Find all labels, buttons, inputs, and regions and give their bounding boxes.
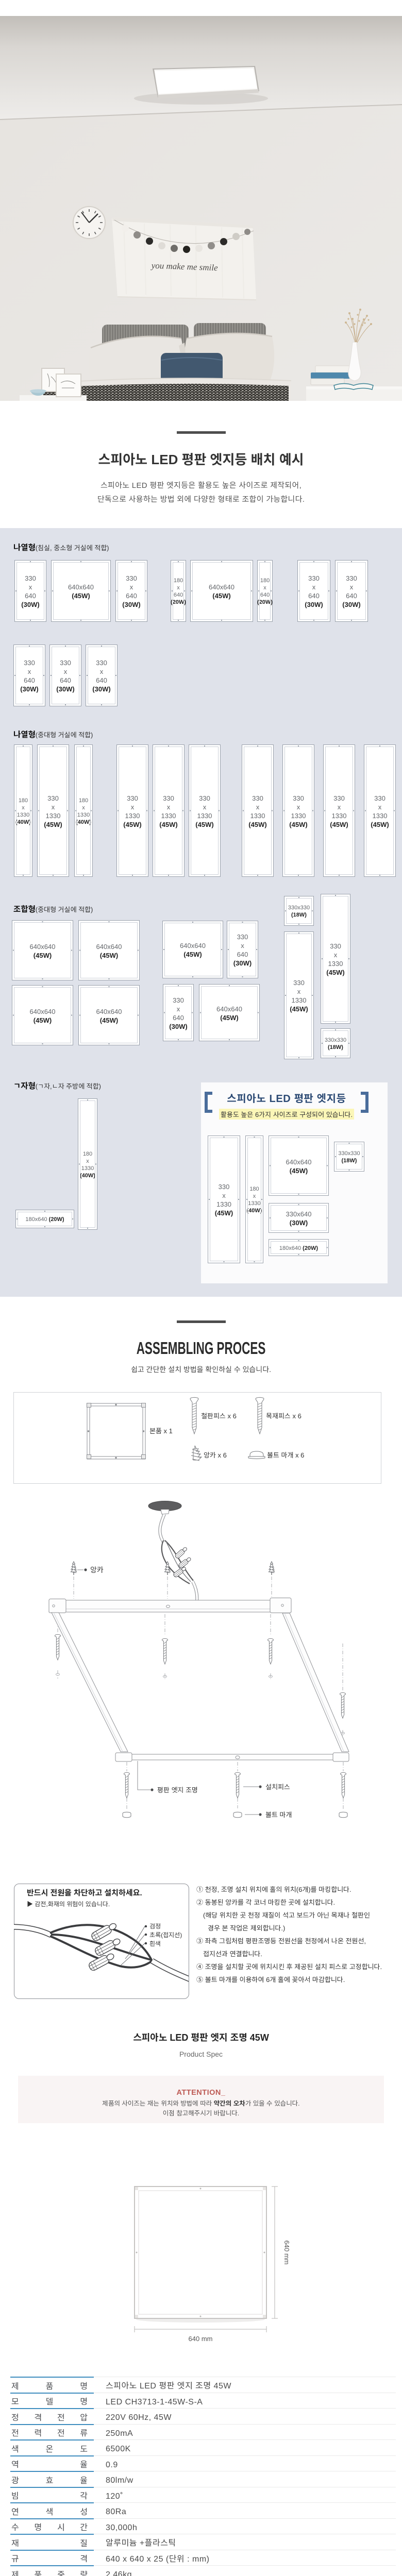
svg-text:흰색: 흰색 — [149, 1939, 161, 1948]
svg-text:초록(접지선): 초록(접지선) — [149, 1930, 182, 1939]
svg-text:앙카 x 6: 앙카 x 6 — [204, 1450, 227, 1460]
svg-text:설치피스: 설치피스 — [265, 1782, 290, 1791]
svg-text:볼트 마개: 볼트 마개 — [265, 1809, 292, 1819]
svg-text:볼트 마개 x 6: 볼트 마개 x 6 — [267, 1450, 304, 1460]
svg-text:640 mm: 640 mm — [189, 2333, 213, 2343]
svg-text:평판 엣지 조명: 평판 엣지 조명 — [157, 1785, 198, 1794]
svg-text:본품 x 1: 본품 x 1 — [149, 1426, 173, 1435]
svg-text:목재피스 x 6: 목재피스 x 6 — [266, 1411, 301, 1420]
svg-text:앙카: 앙카 — [90, 1565, 104, 1575]
svg-text:철판피스 x 6: 철판피스 x 6 — [201, 1411, 237, 1420]
svg-text:검정: 검정 — [149, 1922, 161, 1930]
svg-text:640 mm: 640 mm — [282, 2241, 292, 2265]
